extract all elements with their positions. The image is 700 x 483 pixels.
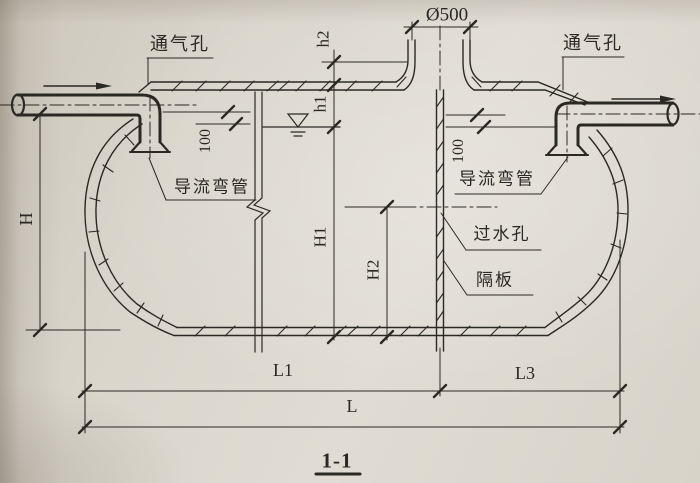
dim-h1-label: h1 xyxy=(312,96,329,113)
section-title: 1-1 xyxy=(322,451,353,472)
manhole-diameter-label: Ø500 xyxy=(426,6,468,25)
septic-tank-section-drawing: Ø500 通气孔 通气孔 h2 h1 100 100 导流弯管 导流弯管 H H… xyxy=(0,0,700,483)
water-passage-hole-label: 过水孔 xyxy=(474,226,531,243)
inlet-pipe xyxy=(12,95,170,153)
dim-H-label: H xyxy=(17,213,35,226)
partition-hatching xyxy=(437,97,444,321)
dim-100-left-label: 100 xyxy=(198,129,214,153)
tank-shell xyxy=(85,40,628,336)
vent-hole-label-right: 通气孔 xyxy=(563,34,623,52)
guide-elbow-label-right: 导流弯管 xyxy=(459,171,535,188)
dim-L-label: L xyxy=(347,397,358,415)
dim-H1-label: H1 xyxy=(312,227,329,248)
dim-H2-label: H2 xyxy=(365,260,382,281)
dim-L3-label: L3 xyxy=(515,364,535,382)
outlet-pipe xyxy=(546,103,679,155)
guide-elbow-label-left: 导流弯管 xyxy=(174,179,250,196)
partition-board-label: 隔板 xyxy=(476,272,514,289)
dim-h2-label: h2 xyxy=(315,31,332,48)
break-lines xyxy=(247,92,270,352)
dim-L1-label: L1 xyxy=(273,361,293,379)
dim-100-right-label: 100 xyxy=(451,139,467,163)
flow-arrow-out xyxy=(612,96,676,103)
partition-wall xyxy=(437,90,444,351)
flow-arrow-in xyxy=(44,83,112,90)
dimension-ticks xyxy=(34,21,626,433)
vent-hole-label-left: 通气孔 xyxy=(150,35,210,53)
